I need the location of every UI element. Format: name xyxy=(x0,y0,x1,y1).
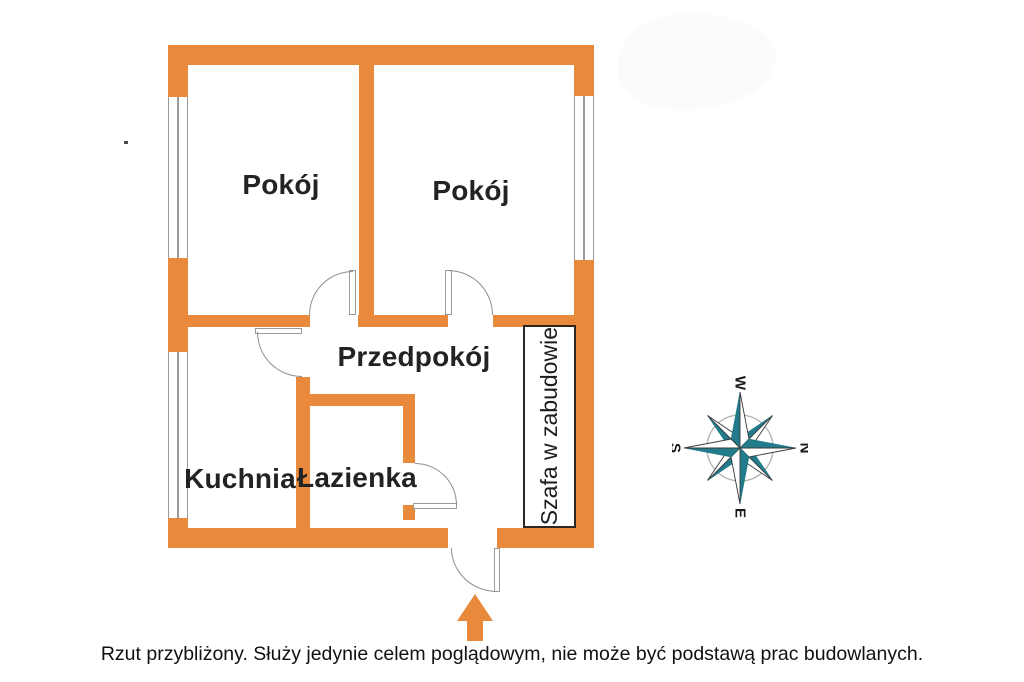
room2-label: Pokój xyxy=(432,175,509,207)
wall-bathroom-right xyxy=(403,394,415,463)
wardrobe-label: Szafa w zabudowie xyxy=(536,327,563,525)
disclaimer-caption: Rzut przybliżony. Służy jedynie celem po… xyxy=(0,643,1024,666)
compass-rose-icon: W N E S xyxy=(672,374,808,522)
compass-main-points xyxy=(684,392,796,504)
wall-hall-top-left xyxy=(188,315,310,327)
bathroom-label: Łazienka xyxy=(297,462,417,494)
door-arc-kitchen xyxy=(257,332,302,377)
room1-label: Pokój xyxy=(242,169,319,201)
window-room1 xyxy=(168,97,188,258)
compass-letter-right: N xyxy=(797,443,809,454)
kitchen-label: Kuchnia xyxy=(184,463,296,495)
wall-bottom-right xyxy=(497,528,594,548)
wall-hall-top-middle xyxy=(358,315,448,327)
hallway-label: Przedpokój xyxy=(338,341,491,373)
compass-letter-bottom: E xyxy=(732,508,749,518)
door-arc-bathroom xyxy=(415,463,457,505)
wall-left-upper xyxy=(168,65,188,97)
entrance-arrow-icon xyxy=(457,594,493,621)
faint-watermark-blob xyxy=(618,14,776,110)
wall-left-middle xyxy=(168,258,188,352)
wall-right-lower xyxy=(574,260,594,548)
door-arc-room2 xyxy=(448,270,493,315)
wall-bathroom-top xyxy=(296,394,415,406)
door-arc-room1 xyxy=(309,271,353,315)
entrance-arrow-shaft xyxy=(467,620,483,641)
wall-right-upper xyxy=(574,65,594,96)
compass-letter-top: W xyxy=(732,376,749,391)
door-arc-entrance xyxy=(451,548,497,592)
wall-top xyxy=(168,45,594,65)
compass-letter-left: S xyxy=(672,443,684,453)
wall-between-rooms xyxy=(359,65,374,315)
wall-bottom-left xyxy=(168,528,448,548)
floorplan-canvas: Szafa w zabudowie Pokój Pokój Przedpokój… xyxy=(0,0,1024,682)
window-room2 xyxy=(574,96,594,260)
dot-artifact xyxy=(124,141,128,144)
wardrobe-box: Szafa w zabudowie xyxy=(523,325,576,528)
